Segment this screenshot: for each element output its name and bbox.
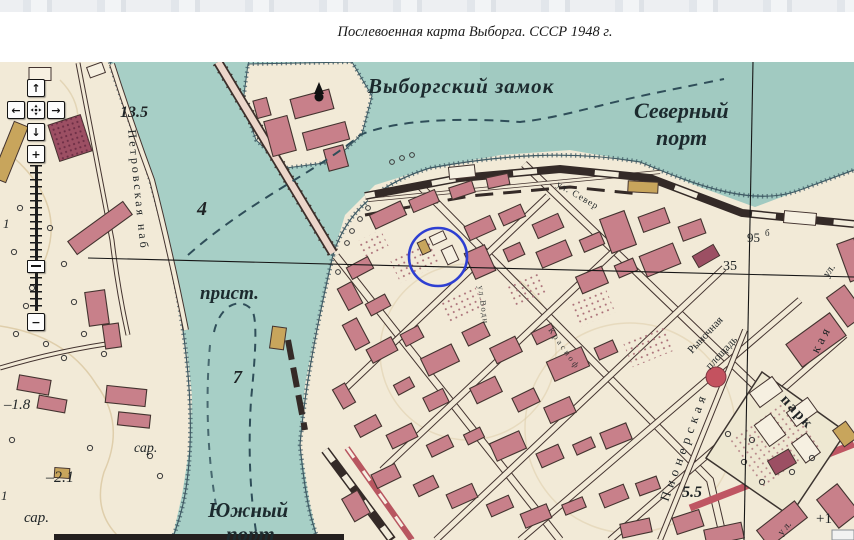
edge-frag-1: 1 [3, 216, 10, 231]
height-35: 35 [723, 259, 737, 274]
depth-7: 7 [233, 367, 243, 387]
label-barn-2: сар. [24, 510, 49, 526]
label-south-port-1: Южный [207, 498, 288, 522]
map-image: Выборгский замок Северный порт Южный пор… [0, 62, 854, 540]
depth-13-5: 13.5 [120, 104, 148, 121]
height-plus1: +1 [816, 511, 832, 527]
pan-up-button[interactable]: ↑ [27, 79, 45, 97]
corner-widget [832, 530, 854, 540]
zoom-slider-track[interactable] [30, 165, 42, 311]
zoom-out-button[interactable]: − [27, 313, 45, 331]
map-caption: Послевоенная карта Выборга. СССР 1948 г. [48, 24, 854, 41]
pan-down-button[interactable]: ↓ [27, 123, 45, 141]
zoom-slider-pole [35, 165, 38, 311]
label-castle: Выборгский замок [367, 74, 555, 98]
map-viewport[interactable]: Выборгский замок Северный порт Южный пор… [0, 62, 854, 540]
label-north-port-2: порт [656, 125, 707, 150]
mark-1-8: –1.8 [3, 397, 31, 413]
label-north-port-1: Северный [634, 98, 729, 123]
pan-center-button[interactable] [27, 101, 45, 119]
label-south-port-2: порт [226, 522, 275, 540]
pan-right-button[interactable]: → [47, 101, 65, 119]
zoom-in-button[interactable]: + [27, 145, 45, 163]
mark-2-1: –2.1 [45, 469, 74, 486]
edge-frag-2: 1 [1, 488, 8, 503]
cropped-text-strip [0, 0, 854, 12]
zoom-slider-handle[interactable] [27, 260, 45, 273]
pan-left-button[interactable]: ← [7, 101, 25, 119]
map-bottom-edge [54, 534, 344, 540]
height-5-5: 5.5 [682, 484, 702, 501]
label-pier: прист. [200, 283, 259, 304]
label-barn-1: сар. [134, 441, 157, 456]
pan-center-icon [30, 104, 42, 116]
height-95: 95 [747, 230, 760, 245]
height-95-sup: б [765, 228, 770, 238]
depth-4: 4 [196, 198, 207, 220]
